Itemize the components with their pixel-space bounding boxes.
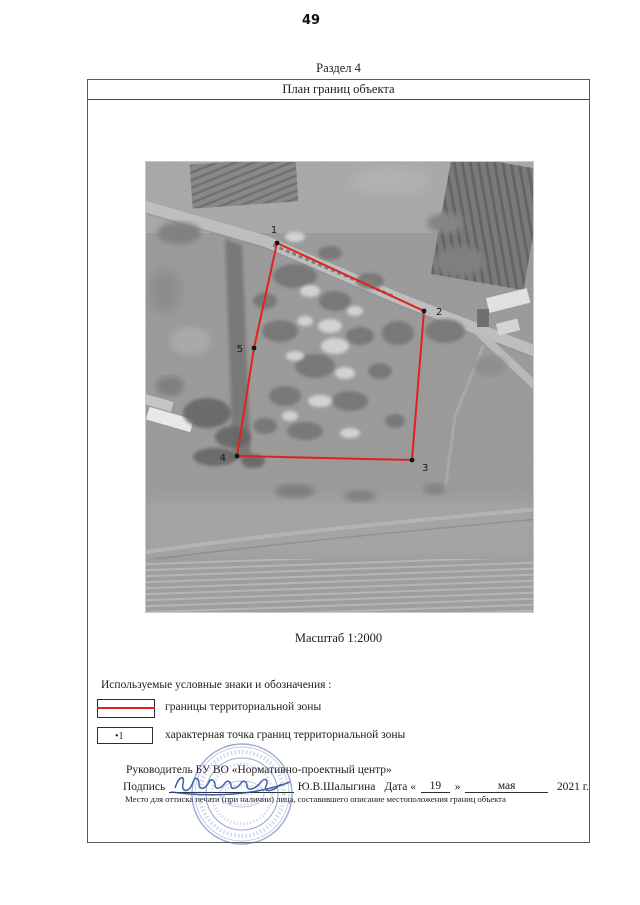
scale-label: Масштаб 1:2000 bbox=[88, 631, 589, 646]
boundary-point-2 bbox=[422, 309, 427, 314]
plan-border-box: План границ объекта bbox=[87, 79, 590, 843]
date-quote-close: » bbox=[455, 781, 461, 793]
legend-item-label: характерная точка границ территориальной… bbox=[165, 729, 405, 741]
boundary-point-label-3: 3 bbox=[422, 463, 428, 474]
legend-item-label: границы территориальной зоны bbox=[165, 701, 321, 713]
page-number: 49 bbox=[0, 13, 622, 28]
boundary-point-4 bbox=[235, 454, 240, 459]
date-label: Дата « bbox=[384, 781, 416, 793]
date-day: 19 bbox=[421, 780, 450, 793]
boundary-point-5 bbox=[252, 346, 257, 351]
boundary-point-label-1: 1 bbox=[271, 225, 277, 236]
date-year: 2021 г. bbox=[557, 781, 589, 793]
boundary-point-label-4: 4 bbox=[220, 453, 226, 464]
signature-label: Подпись bbox=[123, 781, 165, 793]
boundary-point-3 bbox=[410, 458, 415, 463]
signatory-name: Ю.В.Шалыгина bbox=[298, 781, 376, 793]
legend-symbol-characteristic-point: •1 bbox=[97, 727, 153, 744]
aerial-map-image: 12345 bbox=[145, 161, 534, 613]
section-title: Раздел 4 bbox=[87, 61, 590, 76]
legend-symbol-boundary-line bbox=[97, 699, 155, 718]
date-month: мая bbox=[465, 780, 547, 793]
boundary-point-1 bbox=[275, 241, 280, 246]
aerial-map: 12345 bbox=[145, 161, 534, 613]
boundary-point-label-2: 2 bbox=[436, 307, 442, 318]
stamp-placement-note: Место для оттиска печати (при наличии) л… bbox=[125, 794, 585, 804]
plan-title: План границ объекта bbox=[88, 80, 589, 100]
legend-heading: Используемые условные знаки и обозначени… bbox=[101, 679, 331, 691]
handwritten-signature bbox=[169, 777, 294, 793]
boundary-line-sample bbox=[97, 707, 155, 709]
document-page: 49 Раздел 4 План границ объекта bbox=[0, 0, 640, 905]
boundary-point-label-5: 5 bbox=[237, 344, 243, 355]
signature-row: Подпись Ю.В.Шалыгина Дата « 19 » мая 202… bbox=[123, 777, 589, 793]
